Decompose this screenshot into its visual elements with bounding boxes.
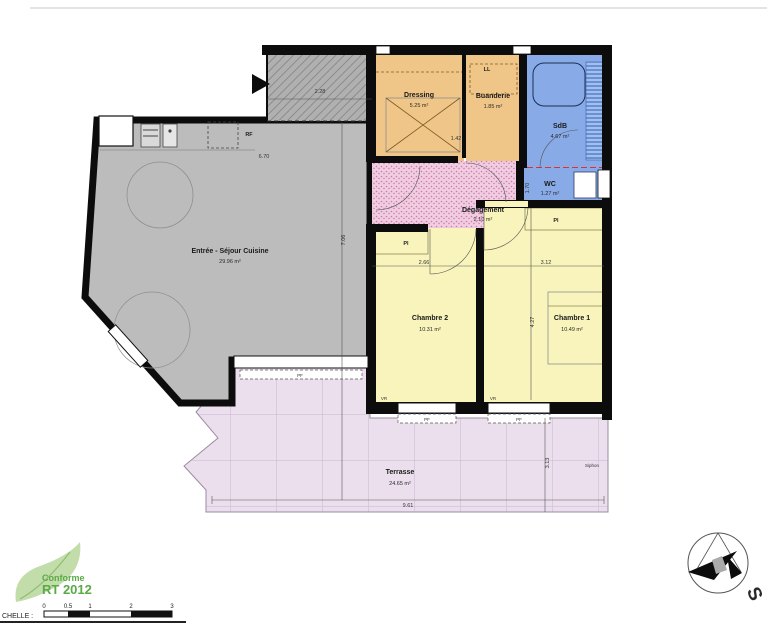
dim-chambre2-width: 2.66: [419, 260, 430, 266]
dim-chambre1-height: 4.27: [530, 317, 536, 328]
floorplan-drawing: Entrée - Séjour Cuisine 29.96 m² Dressin…: [0, 0, 767, 625]
room-sdb: [525, 55, 604, 168]
compass-south-label: S: [742, 584, 766, 604]
wall-dressing-buanderie: [462, 55, 466, 158]
sejour-sliding-door: [234, 356, 368, 368]
label-vr-chambre2: VR: [381, 396, 388, 401]
hob: [163, 124, 177, 147]
area-chambre2: 10.31 m²: [419, 327, 441, 333]
area-chambre1: 10.49 m²: [561, 327, 583, 333]
dim-entry: 2.28: [315, 89, 326, 95]
label-chambre2: Chambre 2: [412, 315, 448, 322]
label-buanderie: Buanderie: [476, 93, 510, 100]
label-sejour: Entrée - Séjour Cuisine: [191, 248, 268, 255]
room-wc: [521, 168, 604, 202]
wall-buanderie-sdb: [519, 45, 527, 168]
label-ll: LL: [484, 67, 491, 73]
wall-center-upper: [366, 45, 376, 162]
wall-east: [602, 45, 612, 420]
label-sdb: SdB: [553, 123, 567, 130]
area-buanderie: 1.85 m²: [484, 104, 503, 110]
dim-sejour-height: 7.06: [341, 235, 347, 246]
wall-center-lower: [366, 228, 376, 414]
entry-hatched-zone: [267, 52, 372, 122]
floorplan-page: Entrée - Séjour Cuisine 29.96 m² Dressin…: [0, 0, 767, 625]
label-pf-sejour: PF: [297, 373, 303, 378]
dim-kitchen: 6.70: [259, 154, 270, 160]
dim-wc: 1.70: [525, 183, 531, 194]
dim-terrasse-width: 9.61: [403, 503, 414, 509]
area-dressing: 5.25 m²: [410, 103, 429, 109]
north-window-2: [513, 46, 531, 54]
scale-tick-05: 0.5: [64, 604, 73, 610]
label-pf-chambre1: PF: [516, 417, 522, 422]
rt2012-logo: Conforme RT 2012: [16, 542, 92, 602]
scale-tick-1: 1: [88, 604, 92, 610]
area-sdb: 4.67 m²: [551, 134, 570, 140]
scale-tick-0: 0: [42, 604, 46, 610]
label-degagement: Dégagement: [462, 207, 505, 214]
compass-rose: S: [688, 533, 766, 604]
chambre2-window: [398, 403, 456, 413]
label-vr-chambre1: VR: [490, 396, 497, 401]
area-degagement: 2.10 m²: [474, 217, 493, 223]
rt2012-line2: RT 2012: [42, 582, 92, 597]
label-wc: WC: [544, 181, 556, 188]
label-siphon: Siphon: [585, 463, 600, 468]
label-pl-chambre2: Pl: [403, 241, 409, 247]
label-rf: RF: [245, 132, 253, 138]
area-sejour: 29.96 m²: [219, 259, 241, 265]
wc-sink: [574, 172, 596, 198]
kitchen-window: [99, 116, 133, 146]
dim-buanderie: 1.42: [451, 136, 462, 142]
dim-chambre1-width: 3.12: [541, 260, 552, 266]
chambre1-window: [488, 403, 550, 413]
wall-chambre2-north: [366, 224, 428, 232]
scale-tick-3: 3: [170, 604, 174, 610]
north-window-1: [376, 46, 390, 54]
label-pl-chambre1: Pl: [553, 218, 559, 224]
east-window-wc: [598, 170, 610, 198]
wall-dressing-south: [372, 156, 458, 163]
label-chambre1: Chambre 1: [554, 315, 590, 322]
area-terrasse: 24.65 m²: [389, 481, 411, 487]
label-pf-chambre2: PF: [424, 417, 430, 422]
scale-tick-2: 2: [129, 604, 133, 610]
scale-bar: CHELLE : 0 0.5 1 2 3: [2, 604, 174, 620]
room-chambre1: [484, 208, 605, 404]
area-wc: 1.27 m²: [541, 191, 560, 197]
label-dressing: Dressing: [404, 92, 434, 99]
label-terrasse: Terrasse: [386, 469, 415, 476]
wall-north: [262, 45, 612, 55]
dim-terrasse-height: 3.13: [545, 458, 551, 469]
wall-chambre1-chambre2: [476, 228, 484, 408]
radiator: [586, 62, 603, 160]
scale-label: CHELLE :: [2, 613, 33, 620]
